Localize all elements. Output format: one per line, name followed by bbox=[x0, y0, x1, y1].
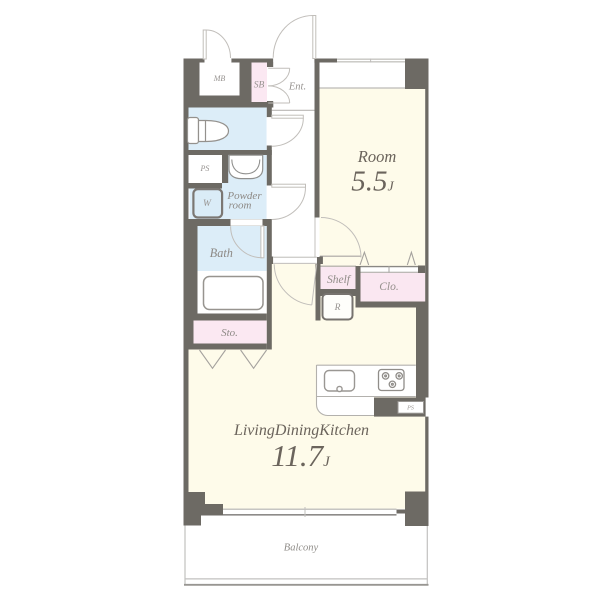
svg-text:Room: Room bbox=[357, 147, 397, 166]
svg-text:R: R bbox=[334, 303, 341, 313]
svg-text:room: room bbox=[229, 200, 252, 212]
svg-text:Bath: Bath bbox=[210, 246, 233, 260]
svg-text:LivingDiningKitchen: LivingDiningKitchen bbox=[233, 422, 369, 439]
svg-text:PS: PS bbox=[406, 406, 414, 412]
svg-text:Clo.: Clo. bbox=[379, 281, 399, 293]
svg-text:11.7J: 11.7J bbox=[271, 438, 331, 473]
svg-text:Ent.: Ent. bbox=[288, 82, 306, 93]
svg-text:W: W bbox=[203, 199, 212, 209]
svg-text:PS: PS bbox=[200, 164, 210, 173]
svg-text:Balcony: Balcony bbox=[284, 543, 319, 554]
svg-text:Sto.: Sto. bbox=[221, 327, 238, 339]
svg-text:MB: MB bbox=[213, 74, 226, 83]
svg-text:SB: SB bbox=[254, 81, 265, 91]
svg-text:Shelf: Shelf bbox=[327, 274, 352, 286]
